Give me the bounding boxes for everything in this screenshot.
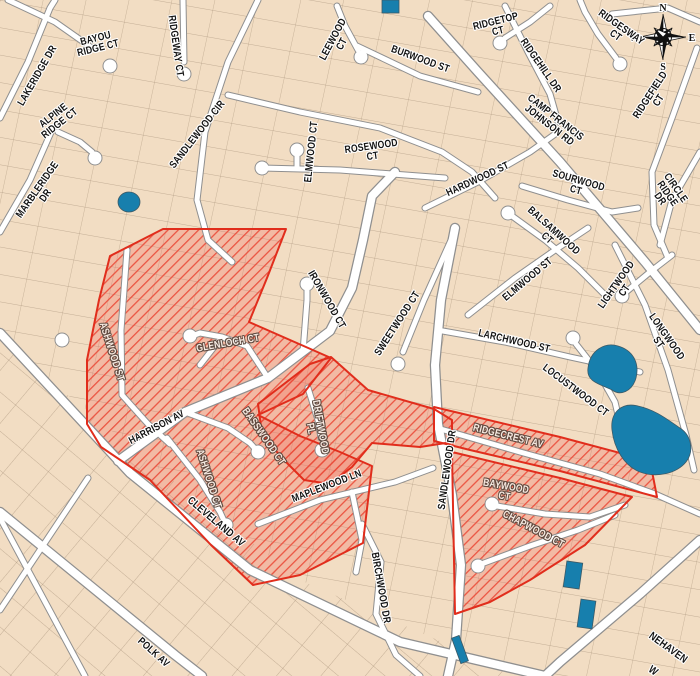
compass-letter: W — [629, 33, 639, 44]
culdesac-bulb — [104, 60, 116, 72]
compass-letter: E — [689, 33, 696, 44]
map-graphics: NESW — [0, 0, 700, 676]
culdesac-bulb — [355, 51, 367, 63]
water-feature — [382, 0, 399, 13]
compass-letter: N — [659, 3, 667, 14]
culdesac-bulb — [178, 68, 190, 80]
culdesac-bulb — [56, 334, 68, 346]
map-canvas: NESW LAKERIDGE DRBAYOU RIDGE CTRIDGEWAY … — [0, 0, 700, 676]
pond — [118, 192, 140, 212]
water-feature — [563, 561, 582, 589]
road-minor — [183, 0, 184, 62]
culdesac-bulb — [392, 358, 404, 370]
compass-letter: S — [660, 62, 666, 73]
